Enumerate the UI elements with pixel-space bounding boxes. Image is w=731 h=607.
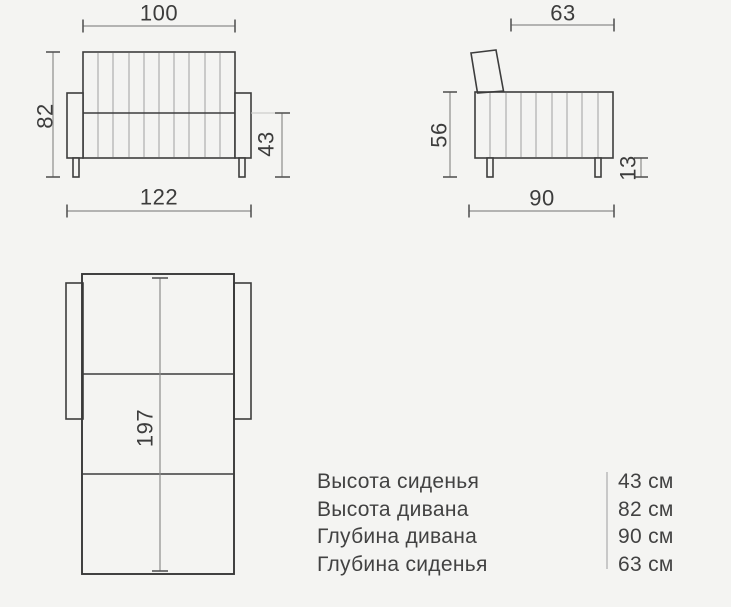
side-tufting-lines <box>490 93 598 157</box>
legend-value-sofa-height: 82 см <box>618 496 674 524</box>
front-bottom-width-value: 122 <box>140 185 178 210</box>
side-leg-height-value: 13 <box>616 155 641 180</box>
legend-value-seat-height: 43 см <box>618 468 674 496</box>
front-dim-seat-height: 43 <box>251 113 290 177</box>
front-view: 100 82 122 43 <box>33 1 291 218</box>
sofa-dimensions-diagram: 100 82 122 43 <box>0 0 731 607</box>
legend-divider-line <box>606 472 608 569</box>
side-dim-body-height: 56 <box>427 92 458 177</box>
front-total-height-value: 82 <box>33 103 58 128</box>
side-seat-depth-value: 63 <box>550 1 575 26</box>
side-body-outline <box>475 92 613 158</box>
front-sofa-body <box>67 52 251 177</box>
front-left-leg <box>73 158 79 177</box>
front-right-armrest <box>235 93 251 158</box>
top-view: 197 <box>66 274 251 574</box>
side-backrest-tilted <box>471 50 504 93</box>
front-dim-total-height: 82 <box>33 52 61 177</box>
legend-label-sofa-depth: Глубина дивана <box>317 523 488 551</box>
legend-labels: Высота сиденья Высота дивана Глубина див… <box>317 468 488 578</box>
top-bed-outline <box>82 274 234 574</box>
front-dim-bottom-width: 122 <box>67 185 251 218</box>
legend-label-seat-depth: Глубина сиденья <box>317 551 488 579</box>
side-back-leg <box>595 158 601 177</box>
legend-label-seat-height: Высота сиденья <box>317 468 488 496</box>
front-dim-top-width: 100 <box>83 1 235 33</box>
top-left-armrest <box>66 283 83 419</box>
front-tufting-lines <box>98 53 220 157</box>
side-view: 63 56 90 13 <box>427 1 649 218</box>
front-top-width-value: 100 <box>140 1 178 26</box>
side-front-leg <box>487 158 493 177</box>
legend-value-seat-depth: 63 см <box>618 551 674 579</box>
front-right-leg <box>239 158 245 177</box>
top-dim-unfolded-length: 197 <box>133 278 169 571</box>
top-unfolded-length-value: 197 <box>133 409 158 447</box>
side-dim-total-depth: 90 <box>469 186 614 218</box>
legend-value-sofa-depth: 90 см <box>618 523 674 551</box>
side-body-height-value: 56 <box>427 122 452 147</box>
front-seat-height-value: 43 <box>254 131 279 156</box>
side-total-depth-value: 90 <box>529 186 554 211</box>
side-dim-seat-depth: 63 <box>511 1 614 32</box>
side-dim-leg-height: 13 <box>616 155 649 180</box>
top-right-armrest <box>234 283 251 419</box>
legend-label-sofa-height: Высота дивана <box>317 496 488 524</box>
front-left-armrest <box>67 93 83 158</box>
side-sofa-body <box>471 50 613 177</box>
legend-values: 43 см 82 см 90 см 63 см <box>618 468 674 578</box>
top-sofa-body <box>66 274 251 574</box>
